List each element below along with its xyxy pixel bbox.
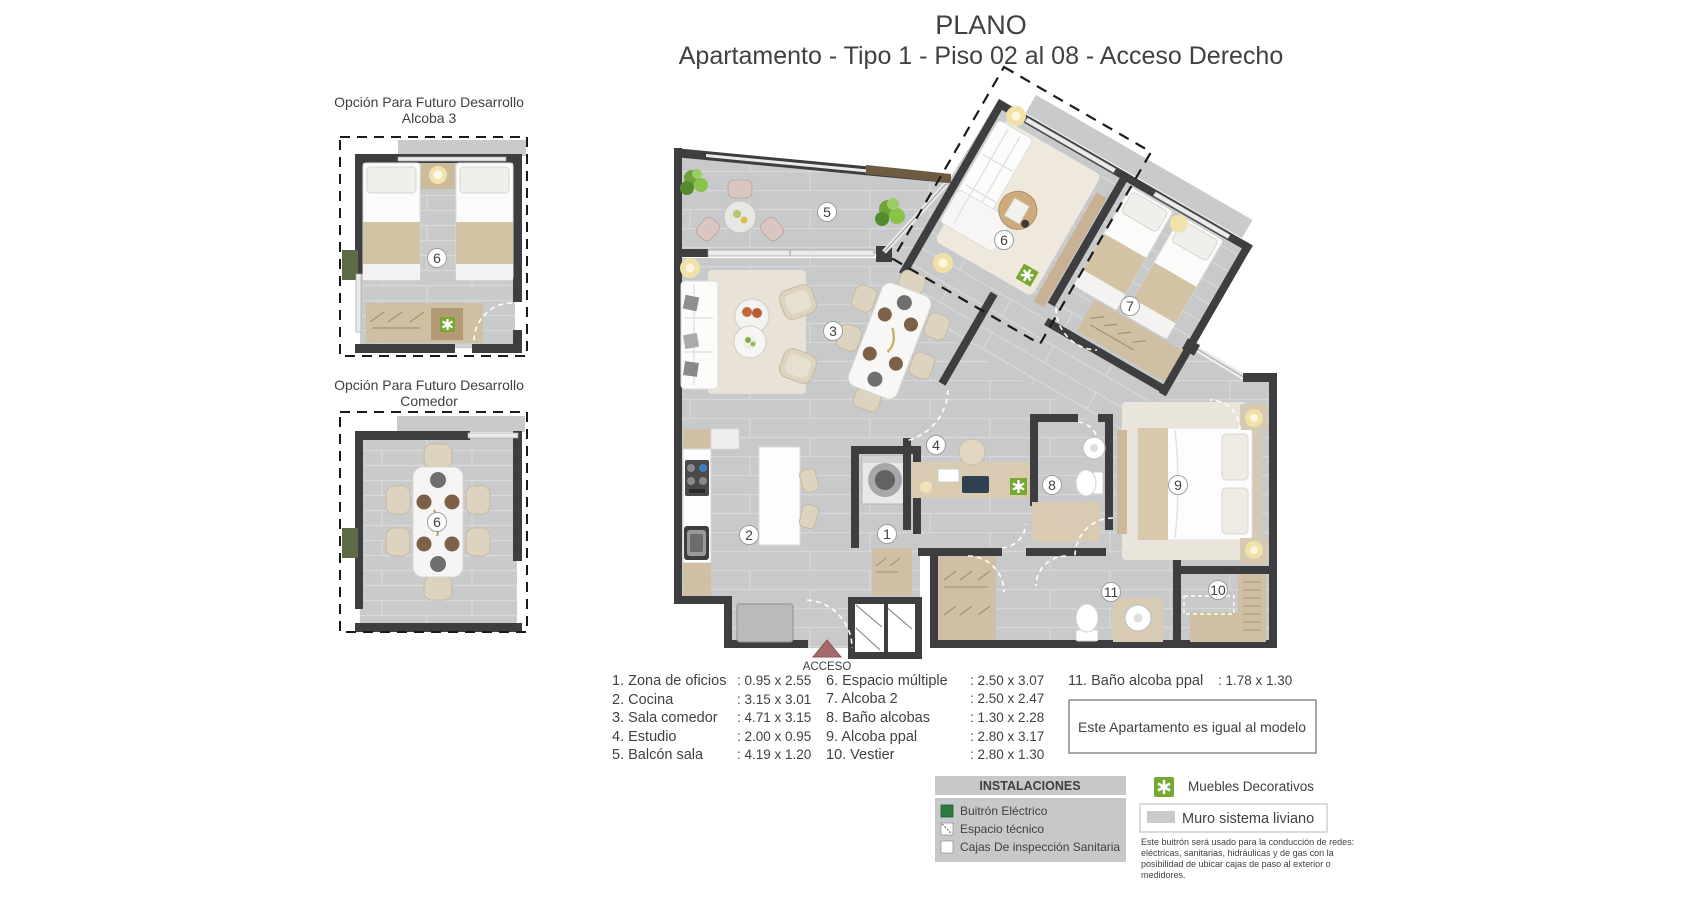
svg-text:: 2.50 x 2.47: : 2.50 x 2.47 [970, 691, 1044, 706]
svg-text:: 4.71 x 3.15: : 4.71 x 3.15 [737, 710, 811, 725]
svg-text:Espacio técnico: Espacio técnico [960, 822, 1044, 836]
svg-text:medidores.: medidores. [1141, 870, 1186, 880]
svg-text:eléctricas, sanitarias, hidráu: eléctricas, sanitarias, hidráulicas y de… [1141, 848, 1334, 858]
svg-text:: 3.15 x 3.01: : 3.15 x 3.01 [737, 692, 811, 707]
svg-text:Muebles Decorativos: Muebles Decorativos [1188, 779, 1314, 794]
svg-text:7: 7 [1126, 298, 1134, 314]
svg-text:Opción Para Futuro Desarrollo: Opción Para Futuro Desarrollo [334, 377, 524, 393]
svg-text:1. Zona de oficios: 1. Zona de oficios [612, 673, 726, 689]
svg-text:6: 6 [433, 250, 441, 266]
svg-text:1: 1 [883, 526, 891, 542]
svg-text:2. Cocina: 2. Cocina [612, 692, 674, 708]
svg-text:: 2.80 x 3.17: : 2.80 x 3.17 [970, 729, 1044, 744]
svg-text:Alcoba 3: Alcoba 3 [402, 110, 457, 126]
svg-text:4. Estudio: 4. Estudio [612, 729, 677, 745]
svg-text:Muro sistema liviano: Muro sistema liviano [1182, 811, 1314, 827]
svg-text:5. Balcón sala: 5. Balcón sala [612, 747, 704, 763]
svg-text:7. Alcoba 2: 7. Alcoba 2 [826, 691, 898, 707]
svg-text:5: 5 [823, 204, 831, 220]
svg-text:: 2.80 x 1.30: : 2.80 x 1.30 [970, 747, 1044, 762]
svg-text:: 2.50 x 3.07: : 2.50 x 3.07 [970, 673, 1044, 688]
svg-text:Buitrón Eléctrico: Buitrón Eléctrico [960, 804, 1048, 818]
svg-text:8. Baño alcobas: 8. Baño alcobas [826, 710, 930, 726]
svg-text:: 1.78 x 1.30: : 1.78 x 1.30 [1218, 673, 1292, 688]
svg-text:2: 2 [745, 527, 753, 543]
svg-text:: 4.19 x 1.20: : 4.19 x 1.20 [737, 747, 811, 762]
svg-text:Comedor: Comedor [400, 393, 458, 409]
svg-text:9. Alcoba ppal: 9. Alcoba ppal [826, 729, 917, 745]
svg-text:11. Baño alcoba ppal: 11. Baño alcoba ppal [1068, 673, 1203, 689]
svg-text:10. Vestier: 10. Vestier [826, 747, 895, 763]
svg-text:Opción Para Futuro Desarrollo: Opción Para Futuro Desarrollo [334, 94, 524, 110]
svg-text:3. Sala comedor: 3. Sala comedor [612, 710, 718, 726]
svg-text:: 2.00 x 0.95: : 2.00 x 0.95 [737, 729, 811, 744]
svg-text:8: 8 [1048, 477, 1056, 493]
svg-text:Apartamento - Tipo 1 - Piso 02: Apartamento - Tipo 1 - Piso 02 al 08 - A… [679, 42, 1283, 70]
svg-text:6. Espacio múltiple: 6. Espacio múltiple [826, 673, 948, 689]
svg-text:Este Apartamento es igual al: Este Apartamento es igual al modelo [1078, 719, 1306, 735]
svg-text:10: 10 [1210, 582, 1226, 598]
svg-text:11: 11 [1104, 584, 1119, 600]
svg-text:Cajas De inspección Sanitaria: Cajas De inspección Sanitaria [960, 840, 1120, 854]
svg-text:PLANO: PLANO [935, 10, 1027, 40]
svg-text:6: 6 [1000, 232, 1008, 248]
svg-text:6: 6 [433, 514, 441, 530]
svg-text:INSTALACIONES: INSTALACIONES [979, 779, 1080, 793]
svg-text:posibilidad de ubicar cajas de: posibilidad de ubicar cajas de paso al e… [1141, 859, 1331, 869]
svg-text:3: 3 [829, 323, 837, 339]
svg-text:4: 4 [932, 437, 940, 453]
svg-text:ACCESO: ACCESO [803, 661, 852, 673]
svg-text:9: 9 [1174, 477, 1182, 493]
svg-text:: 1.30 x 2.28: : 1.30 x 2.28 [970, 710, 1044, 725]
svg-text:: 0.95 x 2.55: : 0.95 x 2.55 [737, 673, 811, 688]
svg-text:Este buitrón será usado para l: Este buitrón será usado para la conducci… [1141, 837, 1354, 847]
